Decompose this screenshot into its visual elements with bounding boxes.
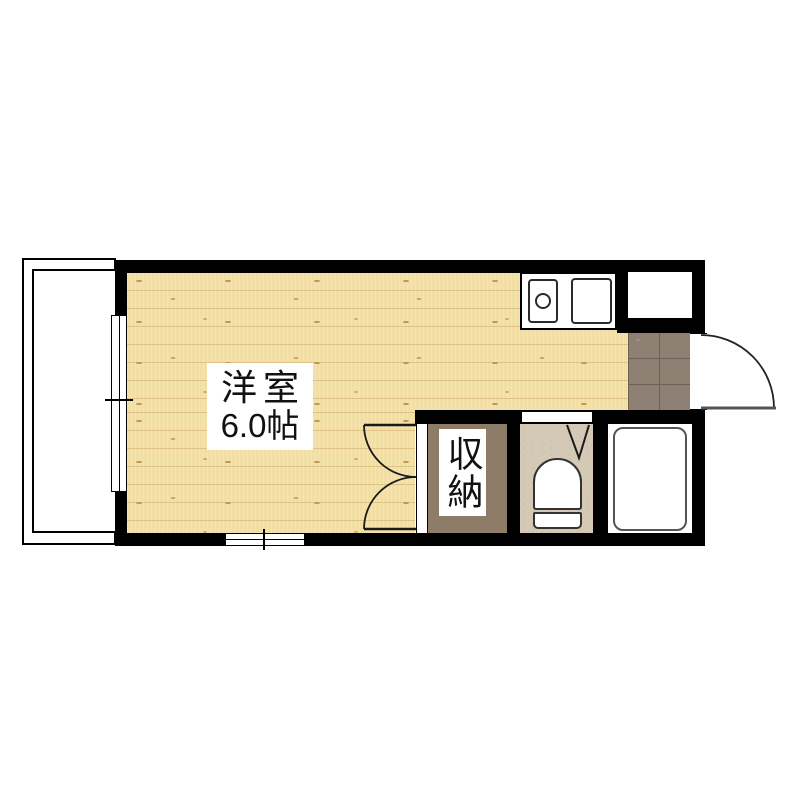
closet-door-arc-bottom [364, 477, 416, 529]
toilet-door-v-icon [567, 425, 589, 458]
entrance-door-arc [701, 335, 774, 408]
door-swing-lines [0, 0, 800, 800]
floorplan-canvas: 洋室 6.0帖 収納 [0, 0, 800, 800]
closet-door-arc-top [364, 425, 416, 477]
